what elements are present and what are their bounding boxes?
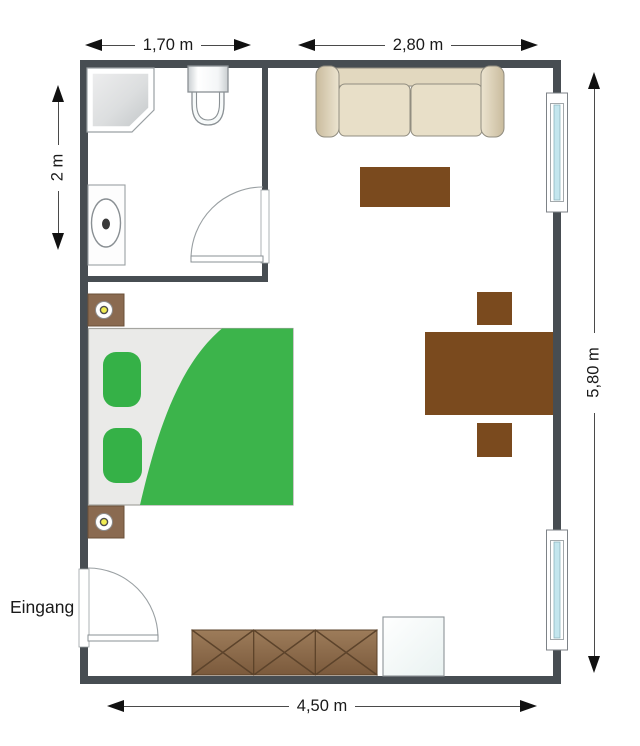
sink-vanity bbox=[88, 185, 125, 265]
toilet bbox=[188, 66, 228, 125]
dimension-label: 4,50 m bbox=[289, 697, 355, 716]
wall-bathroom-horizontal bbox=[80, 276, 268, 282]
sofa bbox=[316, 66, 504, 137]
floorplan-drawing bbox=[0, 0, 640, 746]
dimension-label: 2 m bbox=[49, 154, 68, 182]
dimension-label: 1,70 m bbox=[135, 36, 201, 55]
arrow-down-icon bbox=[52, 233, 64, 250]
arrow-left-icon bbox=[298, 39, 315, 51]
pillow bbox=[103, 428, 142, 483]
dimension-label: 5,80 m bbox=[585, 347, 604, 397]
bed bbox=[89, 329, 294, 506]
window-upper bbox=[547, 93, 568, 212]
sofa-armrest-left bbox=[316, 66, 339, 137]
shower bbox=[87, 68, 154, 132]
coffee-table bbox=[360, 167, 450, 207]
sideboard bbox=[192, 630, 377, 675]
dimension-apartment-width: 4,50 m bbox=[107, 697, 537, 715]
sofa-seat-cushion bbox=[339, 84, 410, 136]
window-glass bbox=[554, 542, 560, 638]
nightstand-bottom bbox=[88, 506, 124, 538]
cabinet bbox=[383, 617, 444, 676]
door-leaf bbox=[191, 256, 263, 262]
arrow-right-icon bbox=[521, 39, 538, 51]
arrow-down-icon bbox=[588, 656, 600, 673]
door-leaf bbox=[88, 635, 158, 641]
bathroom-door bbox=[191, 187, 269, 263]
dining-chair-bottom bbox=[477, 423, 512, 457]
dimension-apartment-depth: 5,80 m bbox=[585, 72, 603, 673]
dining-table bbox=[425, 332, 553, 415]
dimension-bath-depth: 2 m bbox=[49, 85, 67, 250]
dining-chair-top bbox=[477, 292, 512, 325]
nightstand-top bbox=[88, 294, 124, 326]
sink-drain bbox=[102, 219, 110, 230]
arrow-left-icon bbox=[85, 39, 102, 51]
sofa-seat-cushion bbox=[411, 84, 482, 136]
door-swing-arc bbox=[88, 568, 158, 638]
arrow-left-icon bbox=[107, 700, 124, 712]
sofa-armrest-right bbox=[481, 66, 504, 137]
pillow bbox=[103, 352, 141, 407]
entrance-label: Eingang bbox=[10, 597, 74, 618]
dimension-living-width: 2,80 m bbox=[298, 36, 538, 54]
entrance-door bbox=[79, 568, 158, 647]
arrow-up-icon bbox=[588, 72, 600, 89]
sofa-back-cushion bbox=[332, 68, 488, 86]
window-glass bbox=[554, 105, 560, 200]
arrow-right-icon bbox=[234, 39, 251, 51]
dimension-bath-width: 1,70 m bbox=[85, 36, 251, 54]
toilet-tank bbox=[188, 66, 228, 92]
window-lower bbox=[547, 530, 568, 650]
dimension-label: 2,80 m bbox=[385, 36, 451, 55]
arrow-right-icon bbox=[520, 700, 537, 712]
door-swing-arc bbox=[191, 187, 263, 259]
floorplan-canvas: 1,70 m 2,80 m 2 m 5,80 m 4,50 m Eing bbox=[0, 0, 640, 746]
arrow-up-icon bbox=[52, 85, 64, 102]
wall-bottom bbox=[80, 676, 561, 684]
